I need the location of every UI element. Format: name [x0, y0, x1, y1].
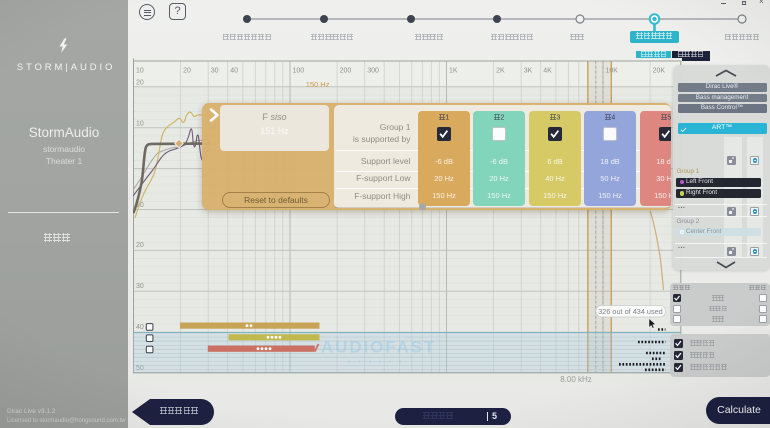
- svg-text:30: 30: [211, 68, 219, 75]
- svg-text:20: 20: [136, 80, 144, 87]
- svg-text:326 out of 434 used: 326 out of 434 used: [598, 307, 663, 316]
- svg-text:4K: 4K: [543, 68, 552, 75]
- svg-text:▪▪▪▪▪▪: ▪▪▪▪▪▪: [348, 357, 409, 366]
- svg-text:150 Hz: 150 Hz: [306, 80, 330, 89]
- svg-text:30: 30: [136, 283, 144, 290]
- svg-text:40: 40: [230, 68, 238, 75]
- svg-text:10: 10: [136, 120, 144, 127]
- svg-text:AUDIOFAST: AUDIOFAST: [321, 338, 436, 357]
- svg-text:1K: 1K: [449, 68, 458, 75]
- svg-text:200: 200: [340, 68, 352, 75]
- svg-text:300: 300: [367, 68, 379, 75]
- svg-text:10: 10: [136, 68, 144, 75]
- svg-text:3K: 3K: [524, 68, 533, 75]
- svg-text:40: 40: [136, 324, 144, 331]
- svg-text:20K: 20K: [653, 68, 666, 75]
- svg-text:20: 20: [183, 68, 191, 75]
- svg-text:100: 100: [293, 68, 305, 75]
- svg-text:2K: 2K: [496, 68, 505, 75]
- svg-text:20: 20: [136, 242, 144, 249]
